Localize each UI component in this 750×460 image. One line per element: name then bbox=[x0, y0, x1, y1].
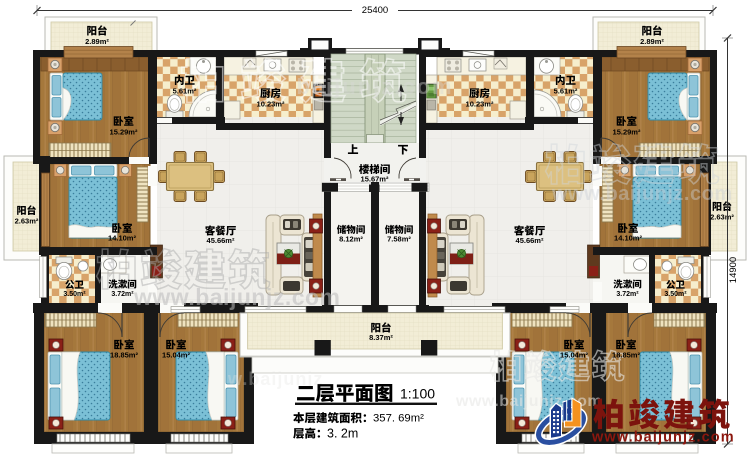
svg-text:7.58m²: 7.58m² bbox=[387, 235, 411, 244]
svg-text:15.29m²: 15.29m² bbox=[613, 128, 641, 137]
svg-text:3. 2m: 3. 2m bbox=[327, 427, 358, 441]
svg-text:15.04m²: 15.04m² bbox=[162, 351, 190, 360]
svg-text:10.23m²: 10.23m² bbox=[257, 100, 285, 109]
svg-text:1:100: 1:100 bbox=[400, 386, 435, 402]
svg-text:15.29m²: 15.29m² bbox=[110, 128, 138, 137]
svg-text:3.72m²: 3.72m² bbox=[616, 291, 639, 298]
svg-text:25400: 25400 bbox=[362, 5, 388, 16]
svg-text:15.04m²: 15.04m² bbox=[560, 351, 588, 360]
svg-text:45.66m²: 45.66m² bbox=[207, 236, 235, 245]
svg-text:45.66m²: 45.66m² bbox=[516, 236, 544, 245]
svg-text:2.89m²: 2.89m² bbox=[85, 37, 109, 46]
svg-text:18.85m²: 18.85m² bbox=[110, 351, 138, 360]
svg-text:www.baijunjz.com: www.baijunjz.com bbox=[591, 430, 735, 446]
svg-text:www.baijunjz.com: www.baijunjz.com bbox=[133, 284, 341, 310]
svg-text:2.63m²: 2.63m² bbox=[710, 213, 734, 222]
svg-text:5.61m²: 5.61m² bbox=[554, 87, 578, 96]
svg-text:357. 69m²: 357. 69m² bbox=[373, 413, 424, 425]
svg-text:2.89m²: 2.89m² bbox=[640, 37, 664, 46]
svg-text:www.baijunjz.com: www.baijunjz.com bbox=[551, 183, 733, 205]
svg-text:8.37m²: 8.37m² bbox=[369, 333, 393, 342]
svg-text:14.10m²: 14.10m² bbox=[108, 234, 136, 243]
svg-text:2.63m²: 2.63m² bbox=[15, 217, 39, 226]
svg-text:18.85m²: 18.85m² bbox=[612, 351, 640, 360]
svg-text:14900: 14900 bbox=[728, 257, 739, 283]
svg-text:baijunjz.com: baijunjz.com bbox=[296, 74, 453, 99]
svg-text:3.50m²: 3.50m² bbox=[63, 291, 86, 298]
svg-text:5.61m²: 5.61m² bbox=[173, 87, 197, 96]
svg-text:14.10m²: 14.10m² bbox=[614, 234, 642, 243]
svg-text:8.12m²: 8.12m² bbox=[339, 235, 363, 244]
svg-text:3.50m²: 3.50m² bbox=[664, 291, 687, 298]
svg-text:3.72m²: 3.72m² bbox=[111, 291, 134, 298]
svg-text:15.67m²: 15.67m² bbox=[361, 175, 389, 184]
svg-text:10.23m²: 10.23m² bbox=[466, 100, 494, 109]
